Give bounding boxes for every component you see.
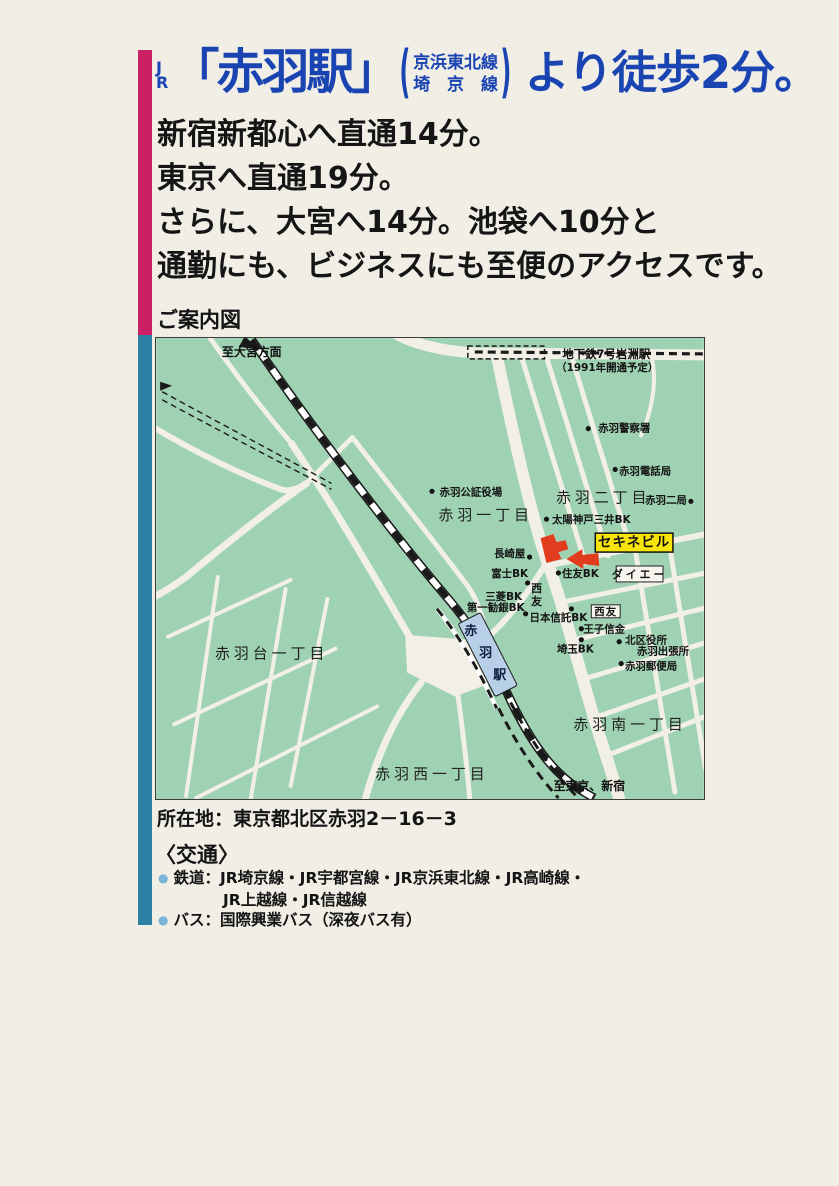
- map-label-sumitomo-bk-dot: [556, 570, 561, 575]
- headline-jr-r: R: [156, 75, 168, 90]
- map-station-char-3: 駅: [492, 668, 506, 683]
- area-map: 地下鉄7号岩淵駅 （1991年開通予定） ダイエー西友 セキネビル 至大宮方面至…: [155, 337, 705, 800]
- accent-bar-magenta: [138, 50, 152, 335]
- map-daiei-box-label: ダイエー: [612, 567, 668, 581]
- map-station-char-1: 赤: [464, 623, 477, 639]
- map-label-taiyo-kobe-mitsui-bk-dot: [544, 517, 549, 522]
- body-line-omiya-ikebukuro: さらに、大宮へ14分。池袋へ10分と: [157, 201, 782, 245]
- body-line-access: 通勤にも、ビジネスにも至便のアクセスです。: [157, 245, 782, 289]
- map-label-akabane-telephone: 赤羽電話局: [619, 464, 671, 477]
- map-label-sumitomo-bk: 住友BK: [562, 567, 600, 580]
- map-label-nihon-shintaku-bk: 日本信託BK: [530, 611, 589, 624]
- map-caption: ご案内図: [157, 304, 241, 334]
- map-label-akabanedai-1chome: 赤羽台一丁目: [215, 645, 328, 663]
- access-rail-line2: JR上越線・JR信越線: [223, 890, 585, 911]
- map-label-nagasakiya-dot: [527, 554, 532, 559]
- map-label-nihon-shintaku-bk-dot: [569, 606, 574, 611]
- subway-station-name: 地下鉄7号岩淵駅: [562, 347, 651, 361]
- access-list: ●鉄道：JR埼京線・JR宇都宮線・JR京浜東北線・JR高崎線・ JR上越線・JR…: [158, 868, 585, 932]
- access-bus-line: ●バス：国際興業バス（深夜バス有）: [158, 910, 585, 932]
- paren-open: (: [400, 46, 411, 103]
- map-label-saitama-bk-dot: [579, 637, 584, 642]
- bullet-icon: ●: [158, 868, 168, 889]
- headline-lines-paren: ( 京浜東北線 埼 京 線 ): [398, 52, 512, 96]
- sekine-label: セキネビル: [598, 535, 670, 551]
- map-label-fuji-bk: 富士BK: [491, 567, 529, 580]
- map-label-akabane-police: 赤羽警察署: [598, 422, 651, 435]
- body-line-tokyo: 東京へ直通19分。: [157, 157, 782, 201]
- flyer-body: { "page_bg": "#f1eee6", "accent": { "mag…: [0, 0, 839, 1186]
- map-label-to-tokyo-shinjuku: 至東京、新宿: [553, 778, 625, 793]
- map-label-kita-ward-office-dot: [617, 639, 622, 644]
- map-label-saitama-bk: 埼玉BK: [557, 643, 595, 656]
- map-label-akabane-minami-1chome: 赤羽南一丁目: [573, 715, 686, 733]
- address-line: 所在地：東京都北区赤羽2－16－3: [157, 804, 457, 831]
- map-label-akabane-nishi-1chome: 赤羽西一丁目: [375, 765, 488, 783]
- map-label-taiyo-kobe-mitsui-bk: 太陽神戸三井BK: [551, 513, 632, 526]
- map-label-akabane-police-dot: [586, 426, 591, 431]
- headline-line-saikyo: 埼 京 線: [413, 74, 498, 96]
- map-label-notary-office-dot: [429, 489, 434, 494]
- accent-bar-teal: [138, 335, 152, 925]
- flyer-page: J R 「赤羽駅」 ( 京浜東北線 埼 京 線 ) より徒歩2分。 新宿新都心へ…: [0, 0, 839, 1186]
- headline-station-name: 「赤羽駅」: [171, 48, 396, 96]
- paren-close: ): [500, 46, 511, 103]
- map-label-akabane-2-branch: 赤羽二局: [645, 493, 687, 506]
- map-label-akabane-1chome: 赤羽一丁目: [438, 506, 533, 524]
- access-rail-line1: ●鉄道：JR埼京線・JR宇都宮線・JR京浜東北線・JR高崎線・: [158, 868, 585, 890]
- map-label-akabane-branch-office: 赤羽出張所: [637, 645, 690, 658]
- map-label-fuji-bk-dot: [525, 580, 530, 585]
- map-label-seiyu-west: 西友: [531, 581, 542, 607]
- subway-opening-note: （1991年開通予定）: [556, 361, 658, 374]
- headline: J R 「赤羽駅」 ( 京浜東北線 埼 京 線 ) より徒歩2分。: [154, 48, 818, 96]
- body-line-shinjuku: 新宿新都心へ直通14分。: [157, 113, 782, 157]
- map-station-char-2: 羽: [479, 646, 492, 661]
- headline-jr: J R: [156, 60, 168, 90]
- map-label-akabane-post-office: 赤羽郵便局: [625, 660, 677, 673]
- map-label-akabane-2-branch-dot: [688, 499, 693, 504]
- map-label-to-omiya: 至大宮方面: [222, 344, 282, 359]
- map-label-akabane-post-office-dot: [619, 661, 624, 666]
- map-seiyu-south-box-label: 西友: [594, 605, 617, 618]
- map-label-nagasakiya: 長崎屋: [494, 547, 526, 560]
- map-svg: 地下鉄7号岩淵駅 （1991年開通予定） ダイエー西友 セキネビル 至大宮方面至…: [156, 338, 704, 799]
- map-label-akabane-telephone-dot: [613, 467, 618, 472]
- access-heading: 〈交通〉: [155, 839, 239, 869]
- map-label-oji-shinkin: 王子信金: [583, 623, 625, 636]
- map-label-daiichi-kangin-bk: 第一勧銀BK: [467, 601, 526, 614]
- map-label-akabane-2chome: 赤羽二丁目: [556, 488, 651, 506]
- headline-walk-time: より徒歩2分。: [525, 50, 818, 95]
- headline-line-keihin-tohoku: 京浜東北線: [413, 52, 498, 74]
- body-copy: 新宿新都心へ直通14分。 東京へ直通19分。 さらに、大宮へ14分。池袋へ10分…: [157, 113, 782, 289]
- map-label-notary-office: 赤羽公証役場: [440, 485, 503, 498]
- bullet-icon: ●: [158, 910, 168, 931]
